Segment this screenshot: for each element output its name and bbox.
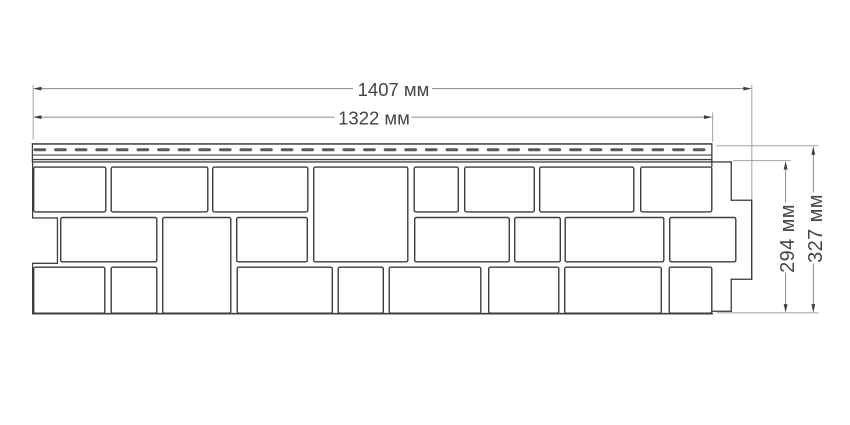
svg-text:327 мм: 327 мм bbox=[805, 194, 827, 263]
svg-text:294 мм: 294 мм bbox=[777, 204, 799, 273]
svg-text:1322 мм: 1322 мм bbox=[338, 108, 410, 129]
svg-text:1407 мм: 1407 мм bbox=[358, 79, 430, 100]
